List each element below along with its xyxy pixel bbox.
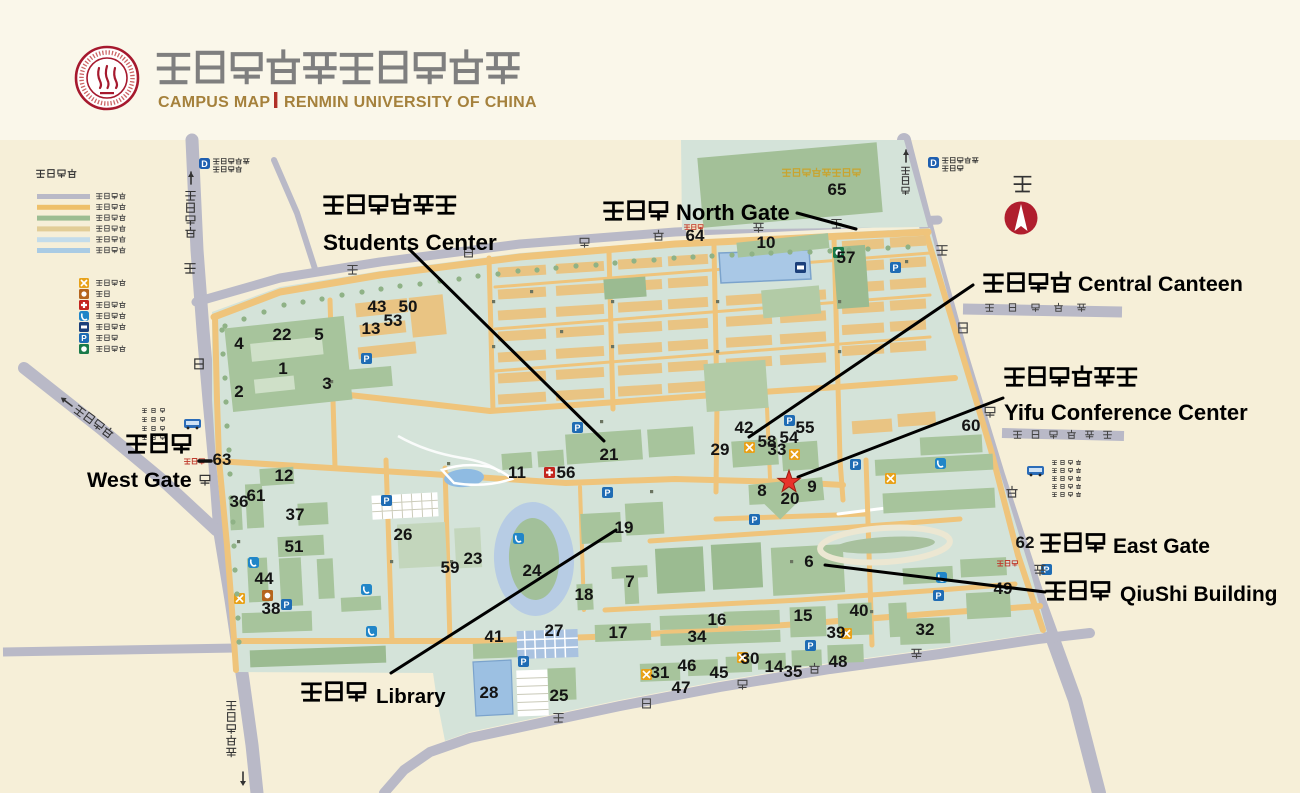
svg-text:22: 22 [273, 325, 292, 344]
svg-text:28: 28 [480, 683, 499, 702]
svg-text:P: P [363, 354, 369, 364]
svg-text:48: 48 [829, 652, 848, 671]
svg-text:RENMIN UNIVERSITY OF CHINA: RENMIN UNIVERSITY OF CHINA [284, 94, 537, 111]
svg-text:62: 62 [1016, 533, 1035, 552]
svg-text:Library: Library [376, 685, 446, 708]
svg-text:55: 55 [796, 418, 815, 437]
svg-text:29: 29 [711, 440, 730, 459]
svg-text:35: 35 [784, 662, 803, 681]
svg-text:14: 14 [765, 657, 784, 676]
svg-text:26: 26 [394, 525, 413, 544]
svg-text:61: 61 [247, 486, 266, 505]
svg-text:12: 12 [275, 466, 294, 485]
svg-text:7: 7 [625, 572, 634, 591]
svg-text:23: 23 [464, 549, 483, 568]
svg-text:60: 60 [962, 416, 981, 435]
svg-text:17: 17 [609, 623, 628, 642]
svg-text:21: 21 [600, 445, 619, 464]
svg-text:45: 45 [710, 663, 729, 682]
svg-text:P: P [574, 423, 580, 433]
svg-text:East Gate: East Gate [1113, 535, 1210, 558]
svg-text:25: 25 [550, 686, 569, 705]
svg-text:D: D [930, 158, 937, 168]
svg-text:Students Center: Students Center [323, 230, 497, 255]
svg-text:47: 47 [672, 678, 691, 697]
svg-text:P: P [852, 460, 858, 470]
svg-text:2: 2 [234, 382, 243, 401]
svg-text:38: 38 [262, 599, 281, 618]
svg-text:20: 20 [781, 489, 800, 508]
svg-text:3: 3 [322, 374, 331, 393]
svg-text:8: 8 [757, 481, 766, 500]
svg-text:9: 9 [807, 477, 816, 496]
svg-text:CAMPUS MAP: CAMPUS MAP [158, 94, 270, 111]
svg-text:30: 30 [741, 649, 760, 668]
svg-text:56: 56 [557, 463, 576, 482]
svg-text:P: P [283, 600, 289, 610]
svg-text:P: P [935, 591, 941, 601]
svg-text:P: P [520, 657, 526, 667]
svg-text:P: P [81, 334, 87, 343]
svg-text:4: 4 [234, 334, 244, 353]
svg-text:Yifu Conference Center: Yifu Conference Center [1004, 400, 1248, 425]
svg-text:40: 40 [850, 601, 869, 620]
svg-text:65: 65 [828, 180, 847, 199]
svg-text:5: 5 [314, 325, 323, 344]
svg-text:Central Canteen: Central Canteen [1078, 272, 1243, 296]
svg-text:11: 11 [508, 463, 526, 482]
svg-text:27: 27 [545, 621, 564, 640]
svg-text:59: 59 [441, 558, 460, 577]
svg-text:P: P [751, 515, 757, 525]
svg-text:51: 51 [285, 537, 304, 556]
svg-text:63: 63 [213, 450, 232, 469]
svg-text:53: 53 [384, 311, 403, 330]
svg-text:QiuShi Building: QiuShi Building [1120, 583, 1277, 606]
svg-text:34: 34 [688, 627, 707, 646]
svg-text:15: 15 [794, 606, 813, 625]
svg-text:19: 19 [615, 518, 634, 537]
svg-text:P: P [604, 488, 610, 498]
svg-text:North Gate: North Gate [676, 200, 790, 225]
svg-text:41: 41 [485, 627, 504, 646]
svg-text:16: 16 [708, 610, 727, 629]
svg-text:32: 32 [916, 620, 935, 639]
svg-text:44: 44 [255, 569, 274, 588]
svg-text:37: 37 [286, 505, 305, 524]
svg-text:10: 10 [757, 233, 776, 252]
svg-text:P: P [892, 263, 898, 273]
svg-text:18: 18 [575, 585, 594, 604]
svg-text:D: D [201, 159, 208, 169]
svg-text:West Gate: West Gate [87, 468, 192, 492]
svg-text:39: 39 [827, 623, 846, 642]
svg-text:1: 1 [278, 359, 287, 378]
svg-text:P: P [786, 416, 792, 426]
svg-text:31: 31 [651, 663, 670, 682]
svg-text:6: 6 [804, 552, 813, 571]
svg-text:46: 46 [678, 656, 697, 675]
svg-text:P: P [383, 496, 389, 506]
svg-text:13: 13 [362, 319, 381, 338]
svg-text:57: 57 [837, 248, 856, 267]
svg-text:P: P [807, 641, 813, 651]
